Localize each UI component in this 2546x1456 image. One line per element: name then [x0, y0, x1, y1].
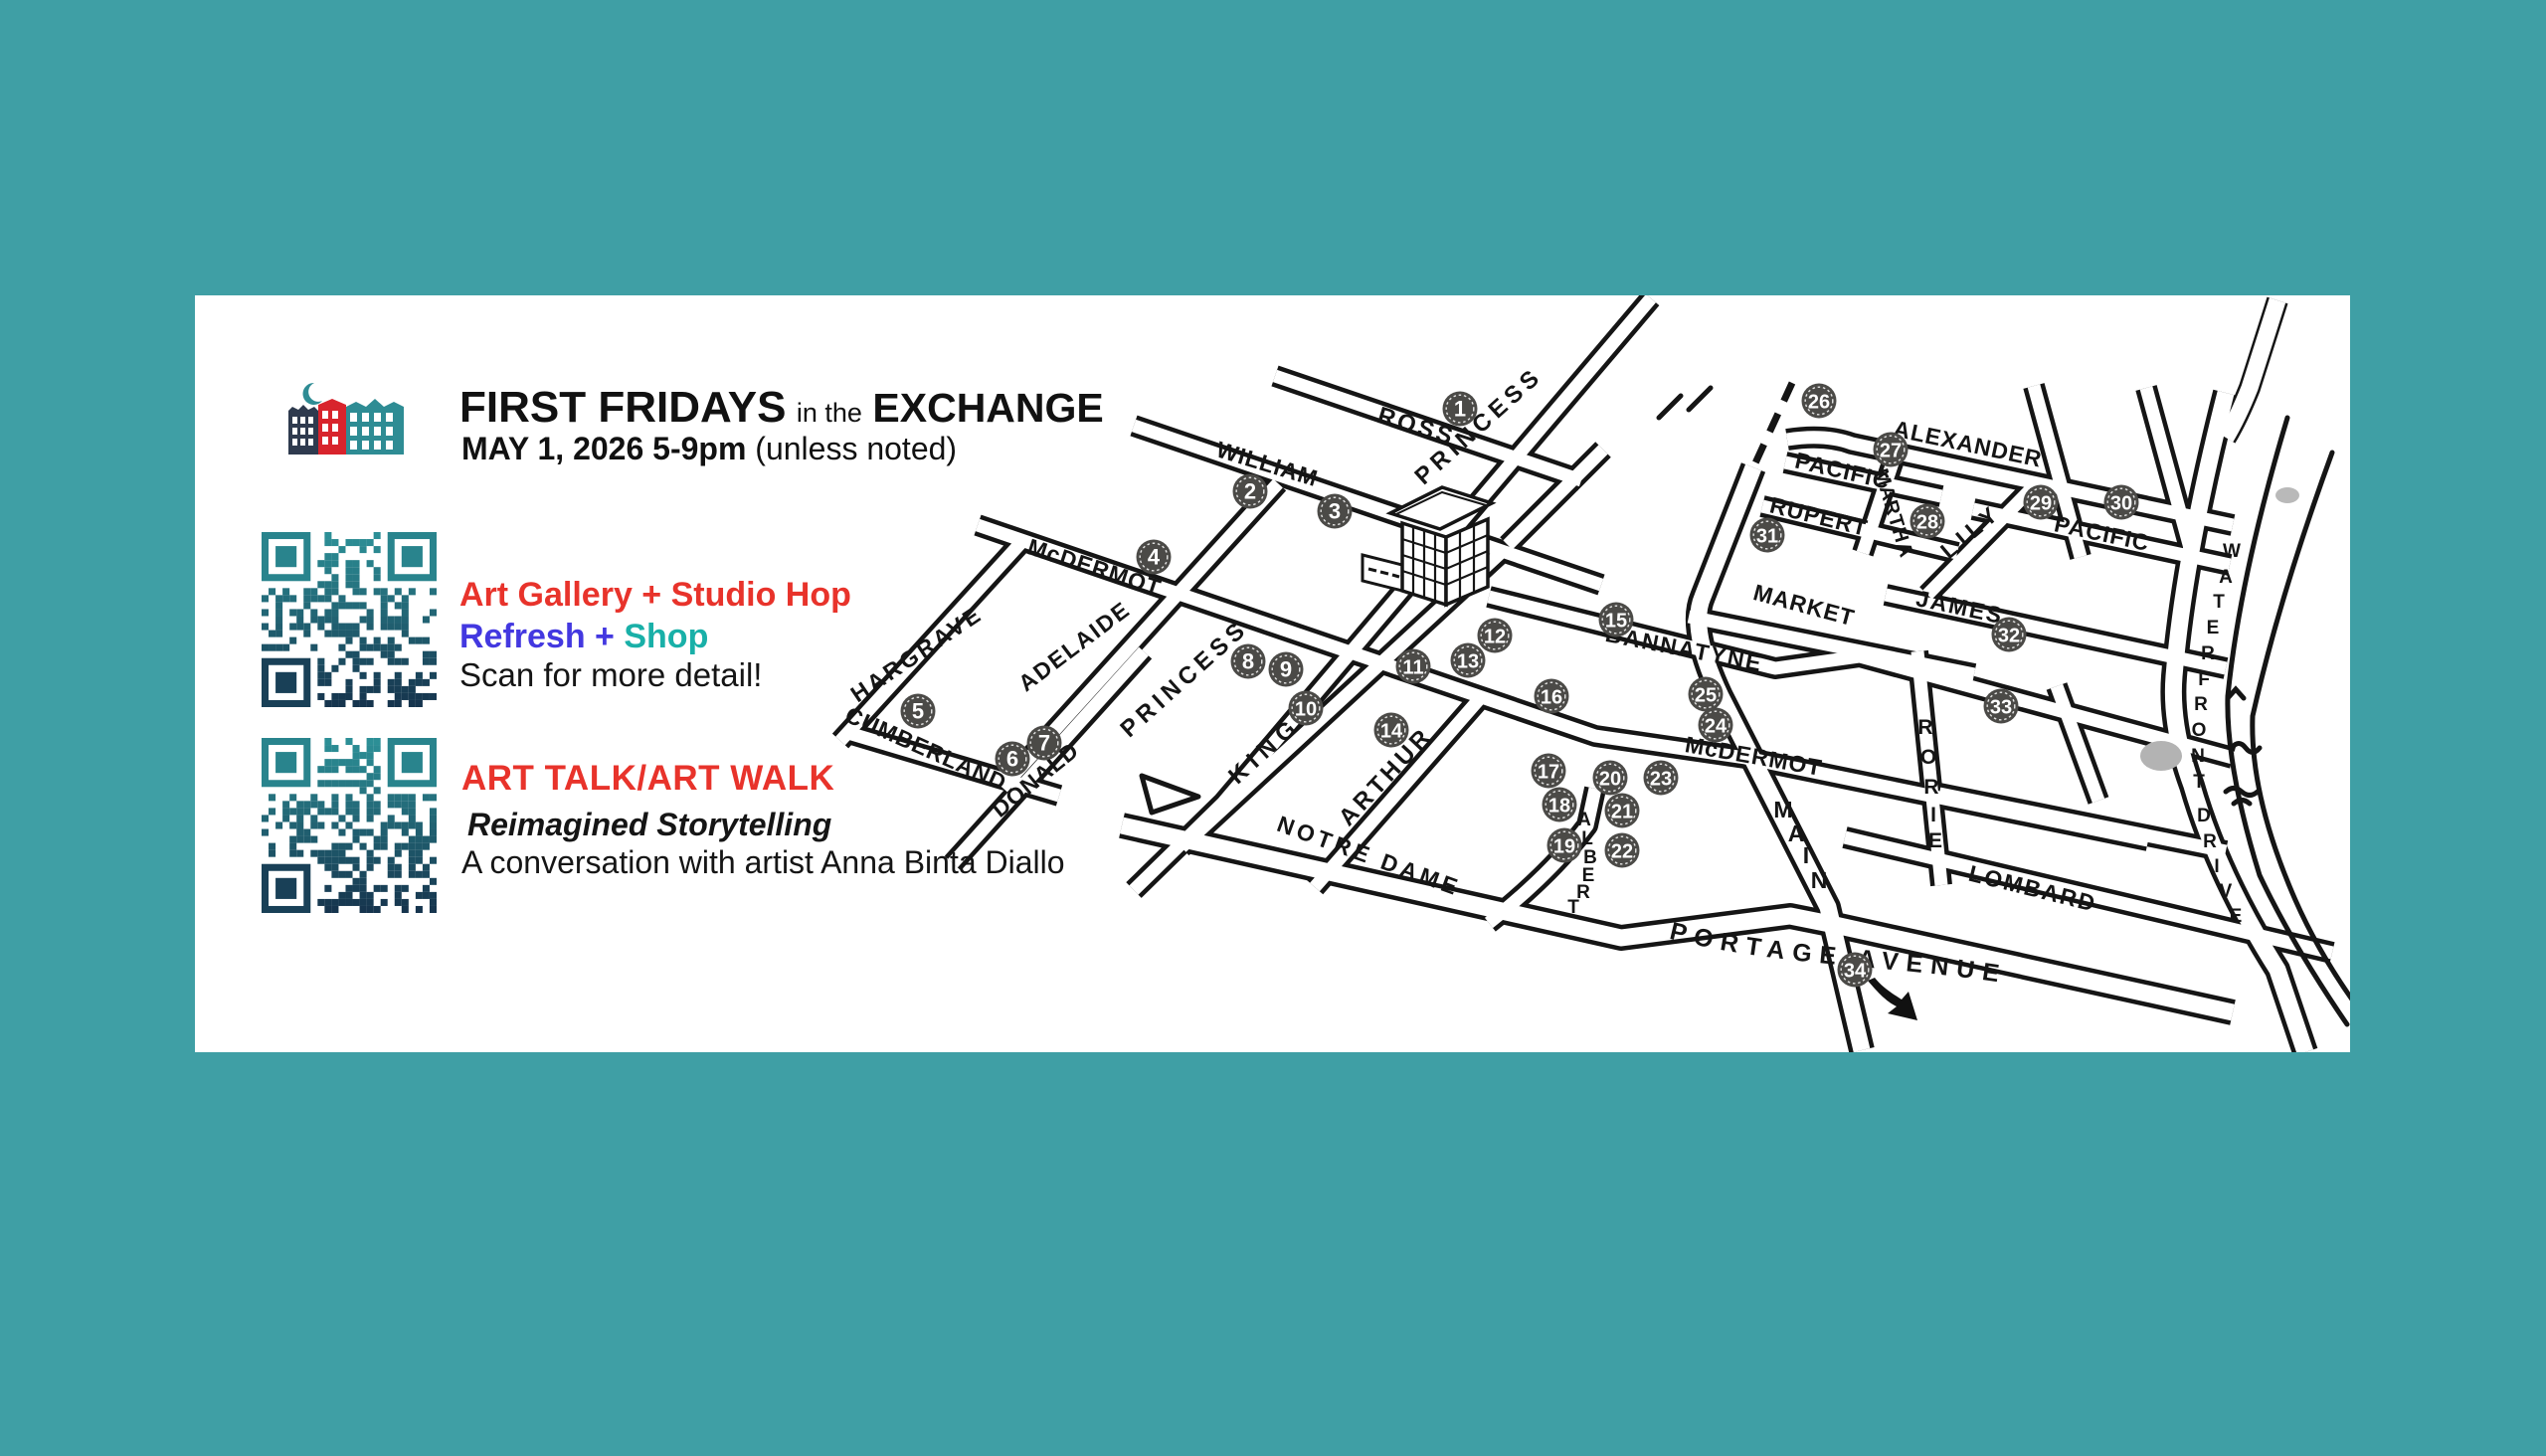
street-label-albert: T [1567, 897, 1579, 918]
street-label-main: M [1773, 797, 1792, 822]
svg-text:31: 31 [1756, 526, 1778, 548]
street-label-waterfront: E [2207, 618, 2220, 638]
street-label-rorie: O [1920, 746, 1936, 769]
street-label-rorie: R [1917, 716, 1932, 739]
street-label-waterfront: O [2192, 720, 2207, 741]
svg-text:2: 2 [1244, 479, 1256, 504]
art-walk-subtitle: Reimagined Storytelling [467, 807, 831, 843]
map-marker-10: 10 [1289, 691, 1324, 726]
svg-text:33: 33 [1990, 697, 2012, 719]
svg-text:24: 24 [1705, 716, 1728, 738]
title-exchange: EXCHANGE [872, 385, 1103, 431]
map-marker-5: 5 [901, 694, 936, 729]
event-date: MAY 1, 2026 5-9pm [461, 431, 746, 466]
svg-text:14: 14 [1380, 721, 1403, 743]
map-marker-19: 19 [1547, 828, 1582, 863]
building-row [288, 399, 404, 455]
svg-text:29: 29 [2030, 493, 2052, 515]
svg-text:21: 21 [1611, 802, 1633, 823]
svg-text:10: 10 [1295, 699, 1317, 721]
svg-text:27: 27 [1880, 441, 1902, 462]
gallery-hop-title: Art Gallery + Studio Hop [459, 576, 851, 615]
street-label-waterfront: R [2194, 694, 2208, 715]
svg-text:18: 18 [1548, 796, 1570, 818]
map-marker-28: 28 [1910, 504, 1945, 539]
svg-text:3: 3 [1329, 499, 1341, 524]
svg-text:30: 30 [2110, 493, 2132, 515]
triangle-block [1142, 776, 1198, 813]
art-walk-title: ART TALK/ART WALK [461, 759, 834, 799]
street-label-rorie: R [1923, 776, 1938, 799]
street-label-hargrave: HARGRAVE [845, 601, 987, 708]
map-marker-21: 21 [1605, 794, 1640, 828]
map-marker-34: 34 [1838, 953, 1873, 988]
map-marker-32: 32 [1992, 618, 2027, 652]
svg-text:13: 13 [1457, 651, 1479, 673]
exchange-buildings-logo [286, 381, 406, 456]
flyer-page: { "colors": { "page_bg": "#3F9FA5", "ban… [0, 0, 2546, 1456]
street-label-albert: A [1577, 810, 1591, 830]
street-label-albert: L [1581, 828, 1593, 849]
svg-text:20: 20 [1599, 769, 1621, 791]
svg-text:8: 8 [1242, 649, 1254, 674]
map-marker-9: 9 [1269, 652, 1304, 687]
svg-text:16: 16 [1541, 687, 1562, 709]
map-marker-13: 13 [1451, 643, 1486, 678]
moon-icon [303, 383, 322, 405]
street-label-rorie: I [1930, 804, 1936, 826]
svg-text:25: 25 [1695, 685, 1717, 707]
map-marker-31: 31 [1750, 518, 1785, 553]
map-marker-4: 4 [1137, 540, 1172, 575]
map-marker-14: 14 [1374, 713, 1409, 748]
svg-text:28: 28 [1916, 512, 1938, 534]
street-label-drive: I [2214, 856, 2219, 877]
street-label-lombard: LOMBARD [1966, 860, 2099, 917]
scan-hint: Scan for more detail! [459, 656, 762, 694]
street-label-drive: R [2203, 831, 2217, 852]
street-label-waterfront: T [2213, 592, 2225, 613]
street-label-waterfront: T [2193, 772, 2205, 793]
street-label-main: I [1803, 842, 1809, 868]
map-marker-6: 6 [996, 742, 1030, 777]
map-marker-11: 11 [1396, 649, 1431, 684]
map-marker-24: 24 [1699, 708, 1733, 743]
map-marker-20: 20 [1593, 761, 1628, 796]
art-walk-description: A conversation with artist Anna Binta Di… [461, 844, 1065, 881]
wave-icon [2226, 789, 2258, 805]
map-marker-33: 33 [1984, 689, 2019, 724]
svg-text:7: 7 [1038, 731, 1050, 756]
svg-text:11: 11 [1402, 657, 1423, 679]
map-marker-2: 2 [1233, 474, 1268, 509]
svg-text:12: 12 [1484, 627, 1506, 648]
svg-text:4: 4 [1148, 545, 1161, 570]
street-label-waterfront: F [2198, 669, 2210, 690]
arrow-icon [1868, 978, 1917, 1020]
shop-label: Shop [624, 618, 708, 655]
map-marker-3: 3 [1318, 494, 1353, 529]
svg-text:19: 19 [1553, 836, 1575, 858]
svg-text:17: 17 [1538, 762, 1559, 784]
street-label-main: N [1811, 867, 1828, 893]
street-label-drive: E [2230, 906, 2243, 927]
refresh-label: Refresh + [459, 618, 624, 655]
svg-text:26: 26 [1808, 392, 1830, 414]
svg-text:34: 34 [1844, 961, 1867, 983]
svg-text:1: 1 [1454, 397, 1466, 422]
flyer-banner: PORTAGE AVENUE ROSSPRINCESSWILLIAMMcDERM… [195, 295, 2350, 1052]
map-marker-23: 23 [1644, 761, 1679, 796]
map-marker-8: 8 [1231, 644, 1266, 679]
street-label-drive: V [2220, 881, 2233, 902]
svg-text:5: 5 [912, 699, 924, 724]
map-marker-15: 15 [1599, 603, 1634, 637]
svg-text:22: 22 [1611, 841, 1633, 863]
svg-text:15: 15 [1605, 611, 1627, 633]
map-marker-25: 25 [1689, 677, 1724, 712]
art-walk-qr-code [262, 736, 437, 915]
map-marker-22: 22 [1605, 833, 1640, 868]
map-marker-12: 12 [1478, 619, 1513, 653]
map-marker-26: 26 [1802, 384, 1837, 419]
street-label-waterfront: W [2223, 541, 2241, 562]
park-spot [2140, 741, 2182, 771]
dashed-street [1659, 383, 1792, 467]
title-first-fridays: FIRST FRIDAYS [459, 383, 786, 432]
refresh-shop-line: Refresh + Shop [459, 618, 708, 656]
street-label-james: JAMES [1913, 585, 2006, 629]
street-label-rorie: E [1928, 829, 1942, 852]
map-marker-30: 30 [2104, 485, 2139, 520]
title-in-the: in the [797, 398, 862, 428]
map-marker-18: 18 [1543, 788, 1577, 822]
street-label-waterfront: A [2219, 567, 2233, 588]
gallery-hop-qr-code [262, 532, 437, 707]
svg-text:23: 23 [1650, 769, 1672, 791]
map-marker-27: 27 [1874, 433, 1909, 467]
street-label-waterfront: R [2201, 643, 2215, 664]
svg-text:6: 6 [1006, 747, 1018, 772]
map-marker-29: 29 [2024, 485, 2059, 520]
svg-text:9: 9 [1280, 657, 1292, 682]
event-date-time: MAY 1, 2026 5-9pm (unless noted) [461, 431, 957, 467]
map-marker-16: 16 [1535, 679, 1569, 714]
park-spot [2275, 487, 2299, 503]
street-label-drive: D [2197, 806, 2211, 826]
event-note: (unless noted) [746, 431, 957, 466]
map-marker-7: 7 [1027, 726, 1062, 761]
street-label-waterfront: N [2191, 746, 2205, 767]
page-title: FIRST FRIDAYS in the EXCHANGE [459, 383, 1104, 433]
map-marker-17: 17 [1532, 754, 1566, 789]
svg-text:32: 32 [1998, 626, 2020, 647]
map-marker-1: 1 [1443, 392, 1478, 427]
